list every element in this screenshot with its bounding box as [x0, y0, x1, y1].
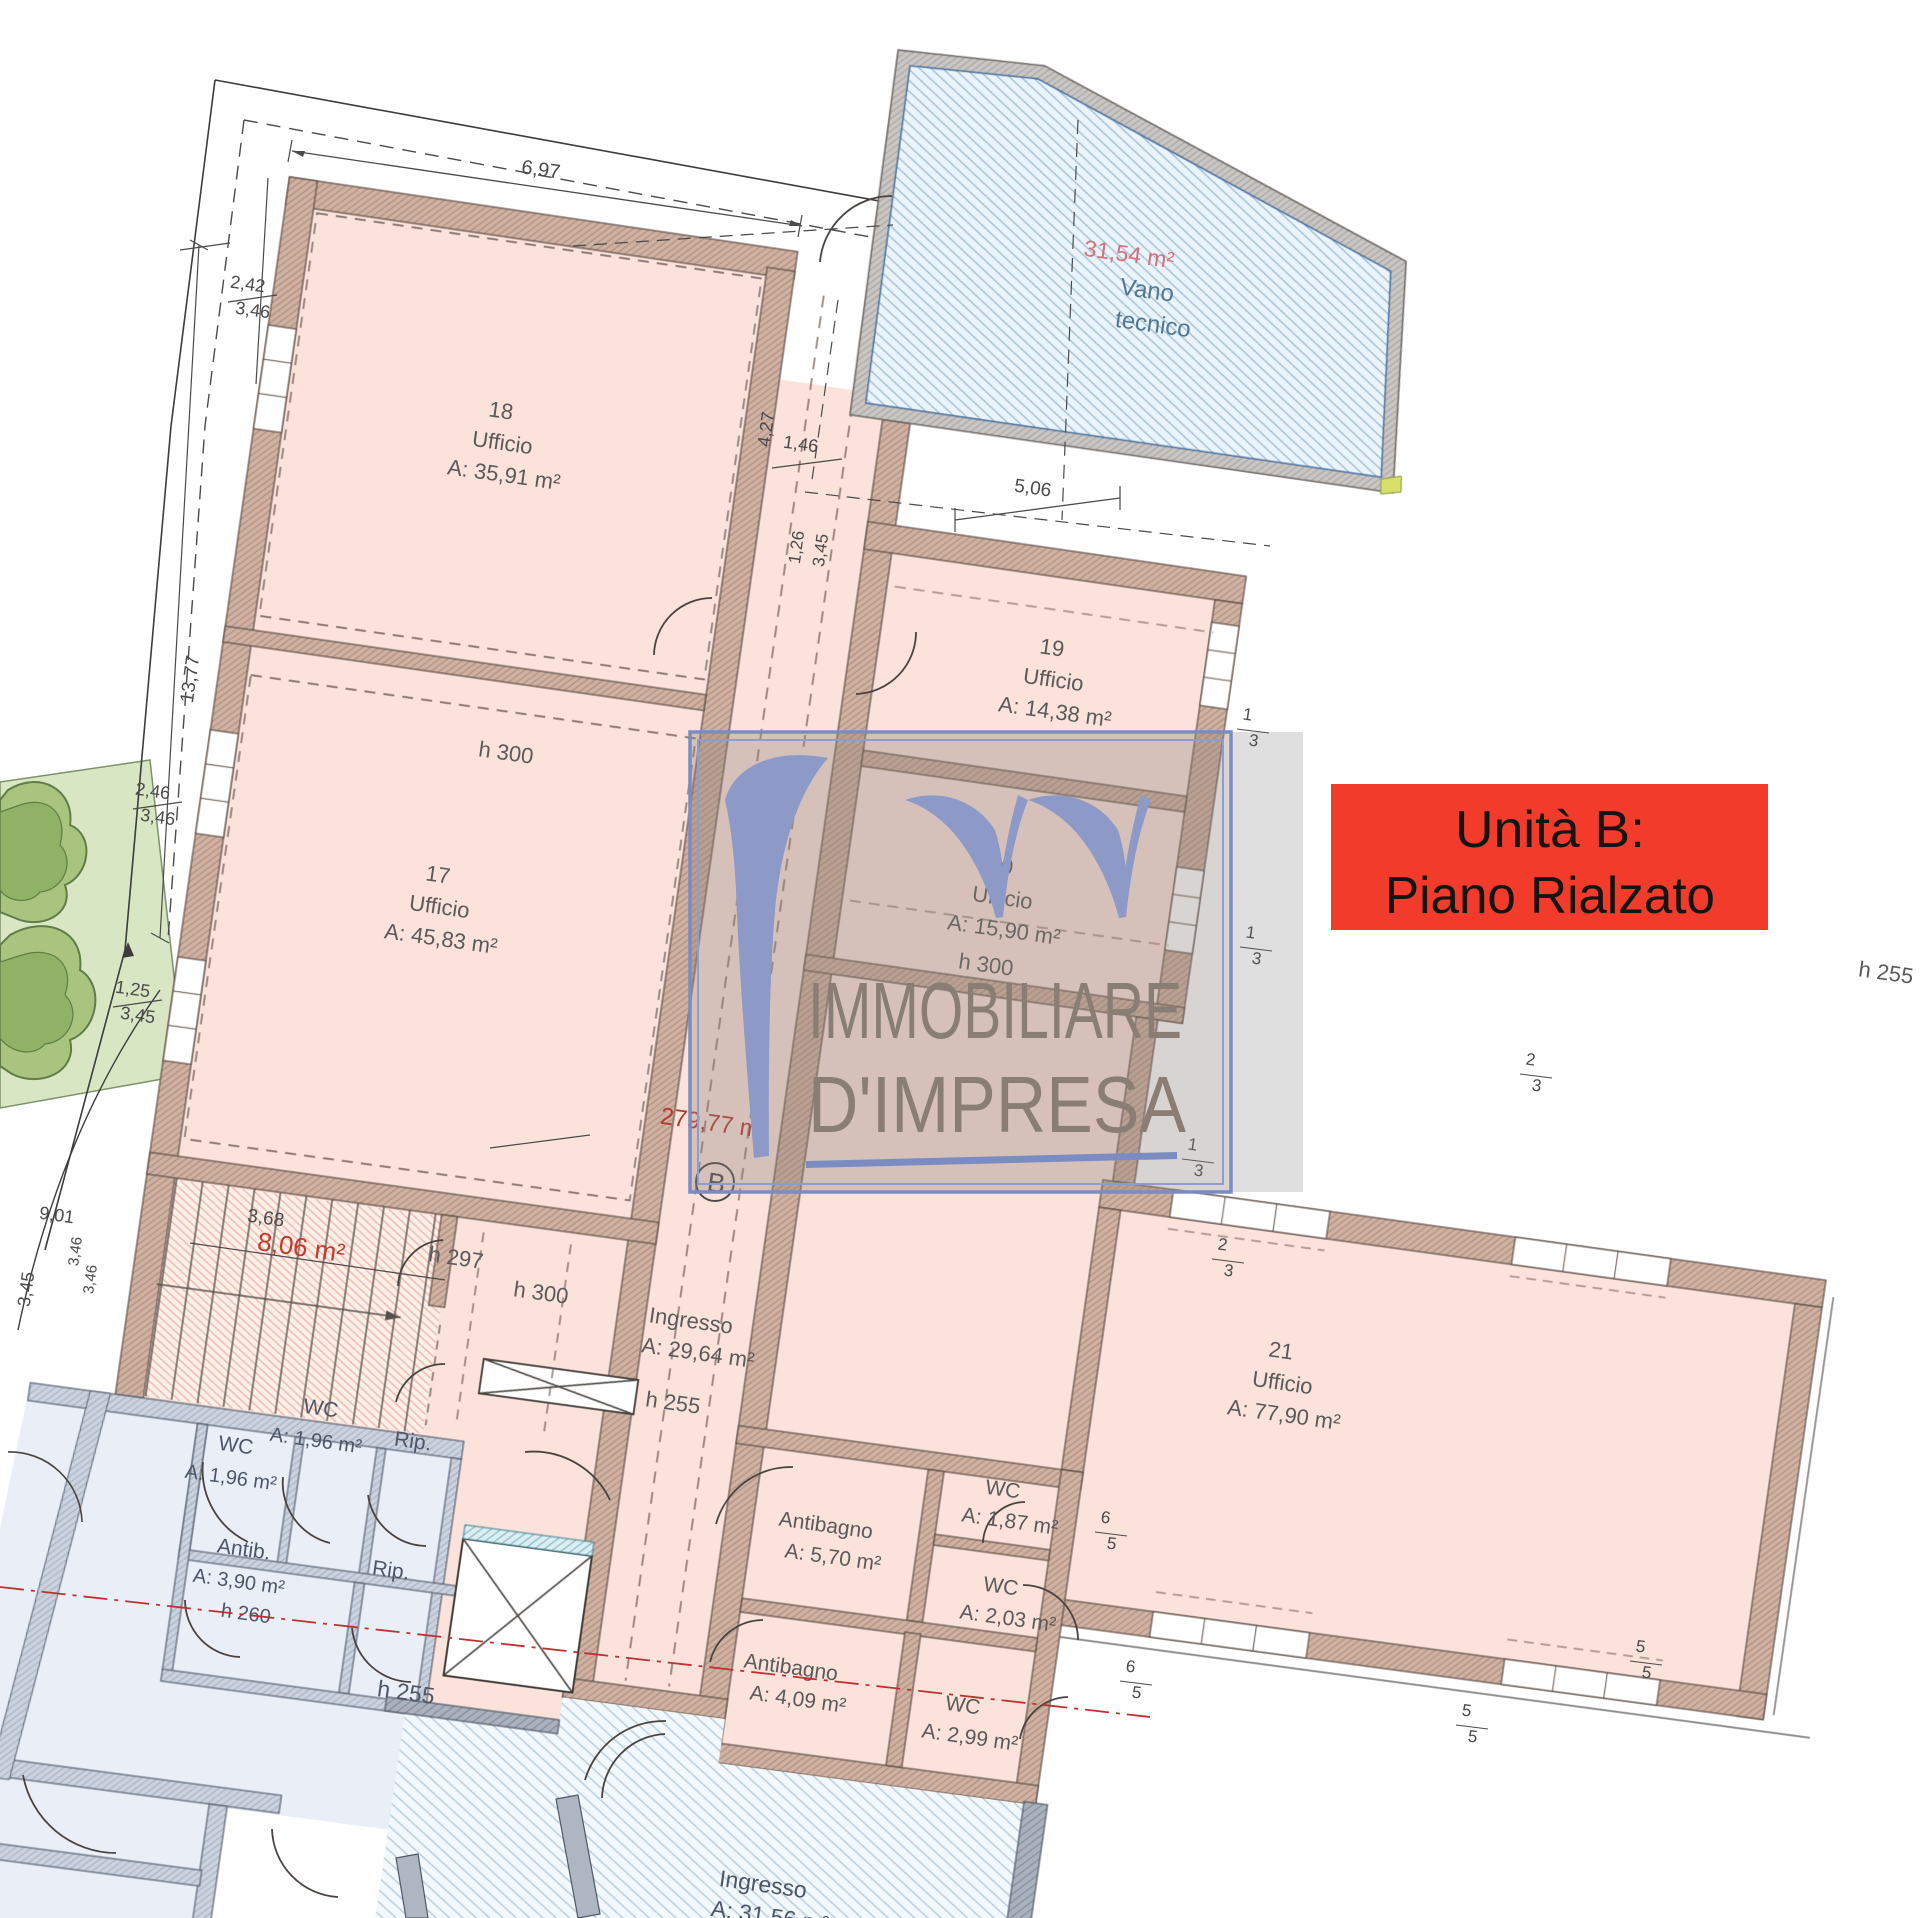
svg-text:2,46: 2,46 — [134, 779, 171, 804]
svg-text:6: 6 — [1125, 1656, 1137, 1676]
svg-text:Ufficio: Ufficio — [1251, 1366, 1315, 1399]
svg-text:A: 45,83 m²: A: 45,83 m² — [383, 918, 499, 959]
svg-text:31,54 m²: 31,54 m² — [1082, 235, 1176, 273]
svg-text:1,25: 1,25 — [114, 977, 151, 1002]
svg-text:A: 1,87 m²: A: 1,87 m² — [960, 1503, 1059, 1539]
svg-text:5: 5 — [1635, 1636, 1647, 1656]
svg-text:h 255: h 255 — [376, 1675, 437, 1709]
svg-text:2: 2 — [1525, 1049, 1537, 1069]
svg-text:19: 19 — [1038, 633, 1066, 661]
svg-text:h 300: h 300 — [512, 1276, 570, 1308]
svg-text:A: 2,03 m²: A: 2,03 m² — [958, 1600, 1057, 1636]
svg-text:Ingresso: Ingresso — [648, 1302, 735, 1339]
svg-text:Rip.: Rip. — [371, 1557, 411, 1585]
svg-text:3,45: 3,45 — [119, 1003, 156, 1028]
svg-text:3,46: 3,46 — [65, 1236, 86, 1267]
svg-text:13,77: 13,77 — [177, 654, 204, 704]
svg-text:h 255: h 255 — [1857, 956, 1915, 988]
svg-text:Rip.: Rip. — [393, 1428, 433, 1456]
svg-text:h 255: h 255 — [644, 1386, 702, 1418]
svg-text:Antib.: Antib. — [216, 1534, 272, 1564]
svg-text:5: 5 — [1106, 1533, 1118, 1553]
svg-text:3,46: 3,46 — [139, 805, 176, 830]
svg-text:h 300: h 300 — [477, 736, 535, 768]
svg-text:Unità B:: Unità B: — [1455, 801, 1645, 859]
svg-text:3,68: 3,68 — [246, 1206, 286, 1232]
svg-text:5,06: 5,06 — [1013, 476, 1053, 502]
svg-text:18: 18 — [487, 396, 515, 424]
svg-text:Ufficio: Ufficio — [471, 426, 535, 459]
svg-text:6: 6 — [1100, 1507, 1112, 1527]
svg-text:5: 5 — [1641, 1662, 1653, 1682]
svg-text:WC: WC — [982, 1573, 1020, 1601]
svg-text:Antibagno: Antibagno — [777, 1508, 874, 1544]
svg-text:17: 17 — [424, 860, 452, 888]
svg-text:21: 21 — [1267, 1336, 1295, 1364]
svg-text:tecnico: tecnico — [1114, 306, 1193, 343]
svg-text:1: 1 — [1242, 704, 1254, 724]
svg-text:3: 3 — [1531, 1075, 1543, 1095]
svg-text:3: 3 — [1223, 1260, 1235, 1280]
svg-text:2: 2 — [1217, 1234, 1229, 1254]
svg-text:Vano: Vano — [1118, 273, 1176, 307]
svg-text:1,26: 1,26 — [785, 530, 808, 565]
svg-text:A: 35,91 m²: A: 35,91 m² — [446, 454, 562, 495]
svg-text:3,45: 3,45 — [809, 533, 832, 568]
svg-text:6,97: 6,97 — [520, 156, 562, 183]
svg-text:Ufficio: Ufficio — [408, 890, 472, 923]
svg-text:A: 31,56 m²: A: 31,56 m² — [709, 1895, 831, 1918]
svg-text:A: 1,96 m²: A: 1,96 m² — [184, 1461, 279, 1496]
svg-text:Piano Rialzato: Piano Rialzato — [1385, 867, 1715, 925]
svg-text:WC: WC — [302, 1395, 340, 1423]
svg-text:5: 5 — [1461, 1700, 1473, 1720]
svg-text:A: 29,64 m²: A: 29,64 m² — [640, 1332, 756, 1373]
svg-text:h 297: h 297 — [427, 1241, 485, 1273]
svg-text:WC: WC — [217, 1432, 255, 1460]
svg-text:Ufficio: Ufficio — [1022, 663, 1086, 696]
svg-text:5: 5 — [1467, 1726, 1479, 1746]
svg-text:A: 4,09 m²: A: 4,09 m² — [748, 1681, 847, 1717]
svg-text:9,01: 9,01 — [38, 1203, 75, 1228]
svg-text:3,45: 3,45 — [14, 1270, 39, 1307]
svg-text:3,46: 3,46 — [234, 298, 271, 323]
svg-text:h 260: h 260 — [220, 1600, 273, 1629]
svg-text:5: 5 — [1131, 1682, 1143, 1702]
svg-text:A: 77,90 m²: A: 77,90 m² — [1226, 1394, 1342, 1435]
svg-text:WC: WC — [984, 1476, 1022, 1504]
svg-text:4,27: 4,27 — [754, 410, 779, 447]
svg-text:A: 2,99 m²: A: 2,99 m² — [920, 1719, 1019, 1755]
svg-text:A: 3,90 m²: A: 3,90 m² — [192, 1565, 287, 1600]
svg-text:IMMOBILIARE: IMMOBILIARE — [808, 966, 1182, 1055]
svg-text:8,06 m²: 8,06 m² — [256, 1226, 348, 1268]
svg-text:1,46: 1,46 — [782, 432, 819, 457]
svg-text:D'IMPRESA: D'IMPRESA — [808, 1060, 1187, 1149]
svg-text:A: 1,96 m²: A: 1,96 m² — [269, 1424, 364, 1459]
svg-text:A: 14,38 m²: A: 14,38 m² — [997, 691, 1113, 732]
svg-text:3,46: 3,46 — [80, 1264, 101, 1295]
svg-text:A: 5,70 m²: A: 5,70 m² — [783, 1539, 882, 1575]
